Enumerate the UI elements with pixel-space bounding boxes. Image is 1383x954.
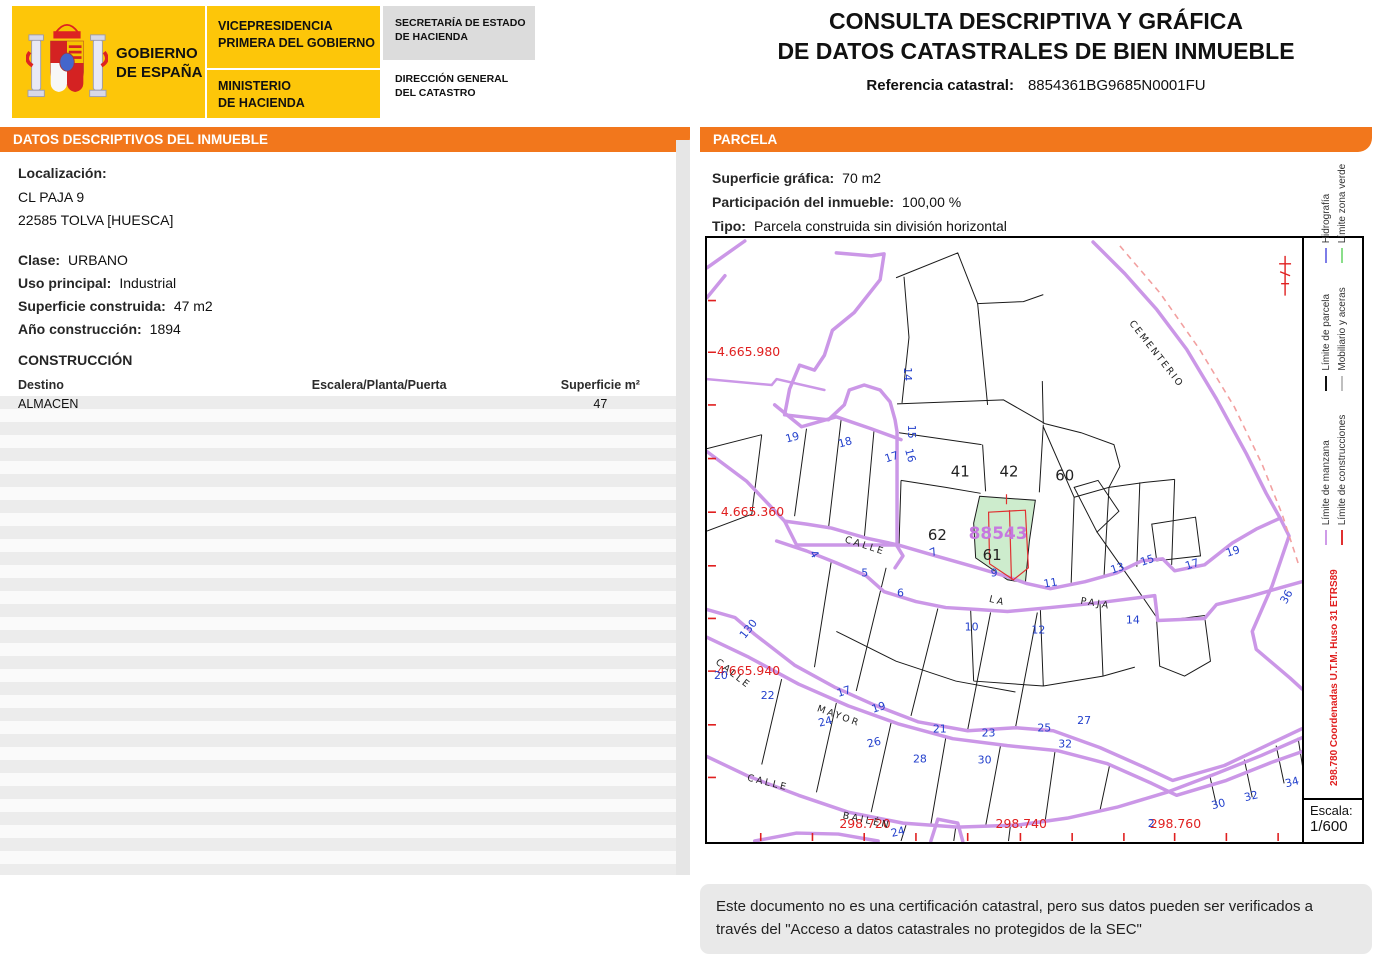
left-panel-edge xyxy=(676,140,690,875)
map-label: 4.665.360 xyxy=(721,504,784,519)
legend-swatch-icon xyxy=(1341,248,1343,263)
legend-item: Hidrografía xyxy=(1321,164,1332,264)
map-label: 17 xyxy=(835,683,852,700)
map-label: 19 xyxy=(784,429,801,445)
legend-item-label: Límite de construcciones xyxy=(1337,415,1348,526)
disclaimer-line-2: través del "Acceso a datos catastrales n… xyxy=(716,918,1356,941)
disclaimer-line-1: Este documento no es una certificación c… xyxy=(716,895,1356,918)
legend-item-label: Mobiliario y aceras xyxy=(1337,287,1348,370)
participacion-value: 100,00 % xyxy=(902,194,961,210)
map-label: 298.740 xyxy=(996,816,1047,831)
cadastral-map-canvas[interactable]: 4.665.9804.665.3604.665.940298.720298.74… xyxy=(707,238,1302,842)
map-label: 13 xyxy=(1109,560,1126,577)
localizacion-block: Localización: CL PAJA 9 22585 TOLVA [HUE… xyxy=(18,165,173,228)
map-label: 42 xyxy=(1000,462,1019,480)
legend-group: Límite de parcelaMobiliario y aceras xyxy=(1321,287,1348,390)
construccion-title: CONSTRUCCIÓN xyxy=(18,352,132,368)
superficie-grafica-row: Superficie gráfica:70 m2 xyxy=(712,170,881,186)
map-label: 60 xyxy=(1055,466,1074,484)
legend-swatch-icon xyxy=(1341,376,1343,391)
map-label: 41 xyxy=(951,462,970,480)
map-label: 30 xyxy=(1210,796,1227,812)
map-label: 32 xyxy=(1058,738,1072,751)
map-label: 23 xyxy=(982,727,996,740)
legend-item-label: Límite de manzana xyxy=(1321,440,1332,525)
construction-table-header-cell: Destino xyxy=(10,378,312,392)
map-label: 30 xyxy=(978,754,992,767)
map-label: 21 xyxy=(933,723,947,736)
map-label: 14 xyxy=(901,367,914,381)
section-header-datos-descriptivos: DATOS DESCRIPTIVOS DEL INMUEBLE xyxy=(0,127,690,152)
government-logo-block: GOBIERNO DE ESPAÑA VICEPRESIDENCIA PRIME… xyxy=(12,6,380,118)
dashed-boundary-line xyxy=(1120,246,1299,566)
uso-principal-row: Uso principal:Industrial xyxy=(18,275,176,291)
map-label: 15 xyxy=(905,425,918,439)
construction-table-header-cell: Superficie m² xyxy=(535,378,666,392)
map-label: 14 xyxy=(1126,613,1140,626)
map-label: 61 xyxy=(983,546,1002,564)
map-label: 18 xyxy=(837,434,854,450)
map-label: 62 xyxy=(928,526,947,544)
clase-value: URBANO xyxy=(68,252,128,268)
legend-swatch-icon xyxy=(1325,530,1327,545)
address-line-1: CL PAJA 9 xyxy=(18,189,173,205)
legend-group: HidrografíaLímite zona verde xyxy=(1321,164,1348,264)
tipo-row: Tipo:Parcela construida sin división hor… xyxy=(712,218,1007,234)
scale-box: Escala: 1/600 xyxy=(1304,798,1362,842)
construction-table-cell xyxy=(312,397,535,411)
ministerio-label: MINISTERIO DE HACIENDA xyxy=(218,78,305,112)
map-label: 4.665.980 xyxy=(717,344,780,359)
map-label: 24 xyxy=(890,824,907,840)
map-label: 5 xyxy=(861,567,868,580)
construction-table-header-cell: Escalera/Planta/Puerta xyxy=(312,378,535,392)
map-label: 298.760 xyxy=(1150,816,1201,831)
map-label: 26 xyxy=(866,735,883,751)
address-line-2: 22585 TOLVA [HUESCA] xyxy=(18,212,173,228)
legend-item: Límite de manzana xyxy=(1321,415,1332,546)
referencia-catastral-label: Referencia catastral: xyxy=(866,77,1014,94)
document-title: CONSULTA DESCRIPTIVA Y GRÁFICA DE DATOS … xyxy=(700,6,1372,94)
map-label: 22 xyxy=(761,689,775,702)
map-label: 19 xyxy=(1224,543,1241,560)
legend-swatch-icon xyxy=(1325,376,1327,391)
spain-coat-of-arms-icon xyxy=(26,14,108,117)
referencia-catastral-value: 8854361BG9685N0001FU xyxy=(1028,77,1206,94)
tipo-value: Parcela construida sin división horizont… xyxy=(754,218,1007,234)
legend-swatch-icon xyxy=(1341,530,1343,545)
title-line-2: DE DATOS CATASTRALES DE BIEN INMUEBLE xyxy=(700,36,1372,66)
map-legend: 298.780 Coordenadas U.T.M. Huso 31 ETRS8… xyxy=(1302,238,1362,842)
superficie-value: 47 m2 xyxy=(174,298,213,314)
legend-item-label: Límite de parcela xyxy=(1321,294,1332,371)
construction-table-cell: 47 xyxy=(535,397,666,411)
map-label: 20 xyxy=(714,669,728,682)
superficie-construida-row: Superficie construida:47 m2 xyxy=(18,298,213,314)
cadastral-map[interactable]: 4.665.9804.665.3604.665.940298.720298.74… xyxy=(705,236,1364,844)
map-label: 16 xyxy=(902,447,918,464)
map-label: 36 xyxy=(1277,588,1295,607)
map-label: 32 xyxy=(1243,788,1260,804)
map-label: 17 xyxy=(1183,556,1200,573)
map-label: CALLE xyxy=(746,773,789,794)
escala-value: 1/600 xyxy=(1310,818,1362,835)
north-arrow-icon xyxy=(1279,256,1291,296)
legend-swatch-icon xyxy=(1325,248,1327,263)
secretaria-estado-label: SECRETARÍA DE ESTADO DE HACIENDA xyxy=(383,6,535,60)
construction-table-cell: ALMACEN xyxy=(10,397,312,411)
clase-row: Clase:URBANO xyxy=(18,252,128,268)
vicepresidencia-label: VICEPRESIDENCIA PRIMERA DEL GOBIERNO xyxy=(218,18,375,52)
map-label: 6 xyxy=(897,587,904,600)
construction-table-rows-background xyxy=(0,396,676,875)
map-label: 28 xyxy=(913,753,927,766)
map-label: 11 xyxy=(1043,575,1059,590)
anio-value: 1894 xyxy=(150,321,181,337)
referencia-catastral: Referencia catastral:8854361BG9685N0001F… xyxy=(700,77,1372,94)
map-label: 2 xyxy=(1148,817,1155,830)
map-label: 7 xyxy=(928,545,940,560)
map-label: 4 xyxy=(807,548,822,561)
legend-item-label: Límite zona verde xyxy=(1337,164,1348,244)
map-label: 88543 xyxy=(969,523,1028,543)
map-label: 25 xyxy=(1037,722,1051,735)
anio-construccion-row: Año construcción:1894 xyxy=(18,321,181,337)
header-divider xyxy=(205,6,207,118)
map-label: 27 xyxy=(1077,714,1091,727)
map-label: 34 xyxy=(1284,774,1301,790)
legend-item: Límite de construcciones xyxy=(1337,415,1348,546)
map-label: 15 xyxy=(1139,552,1156,569)
map-label: CEMENTERIO xyxy=(1127,319,1186,390)
map-label: LA xyxy=(988,594,1007,609)
map-label: 10 xyxy=(965,620,979,633)
section-header-parcela: PARCELA xyxy=(700,127,1372,152)
construction-table-row: ALMACEN47 xyxy=(10,397,666,411)
legend-item: Límite de parcela xyxy=(1321,287,1332,390)
superficie-grafica-value: 70 m2 xyxy=(842,170,881,186)
utm-coordinates-note: 298.780 Coordenadas U.T.M. Huso 31 ETRS8… xyxy=(1329,569,1340,786)
escala-label: Escala: xyxy=(1310,803,1362,818)
map-label: 9 xyxy=(991,567,998,580)
legend-item: Mobiliario y aceras xyxy=(1337,287,1348,390)
header-divider xyxy=(205,68,380,70)
uso-value: Industrial xyxy=(119,275,176,291)
localizacion-label: Localización: xyxy=(18,165,107,181)
map-label: 19 xyxy=(870,699,887,716)
legend-item-label: Hidrografía xyxy=(1321,194,1332,243)
legend-item: Límite zona verde xyxy=(1337,164,1348,264)
participacion-row: Participación del inmueble:100,00 % xyxy=(712,194,961,210)
map-label: 12 xyxy=(1031,623,1045,636)
construction-table-header: DestinoEscalera/Planta/PuertaSuperficie … xyxy=(10,378,666,392)
gobierno-espana-label: GOBIERNO DE ESPAÑA xyxy=(116,44,202,82)
legend-group: Límite de manzanaLímite de construccione… xyxy=(1321,415,1348,546)
direccion-general-catastro-label: DIRECCIÓN GENERAL DEL CATASTRO xyxy=(383,72,535,100)
map-label: PAJA xyxy=(1080,596,1112,612)
title-line-1: CONSULTA DESCRIPTIVA Y GRÁFICA xyxy=(700,6,1372,36)
